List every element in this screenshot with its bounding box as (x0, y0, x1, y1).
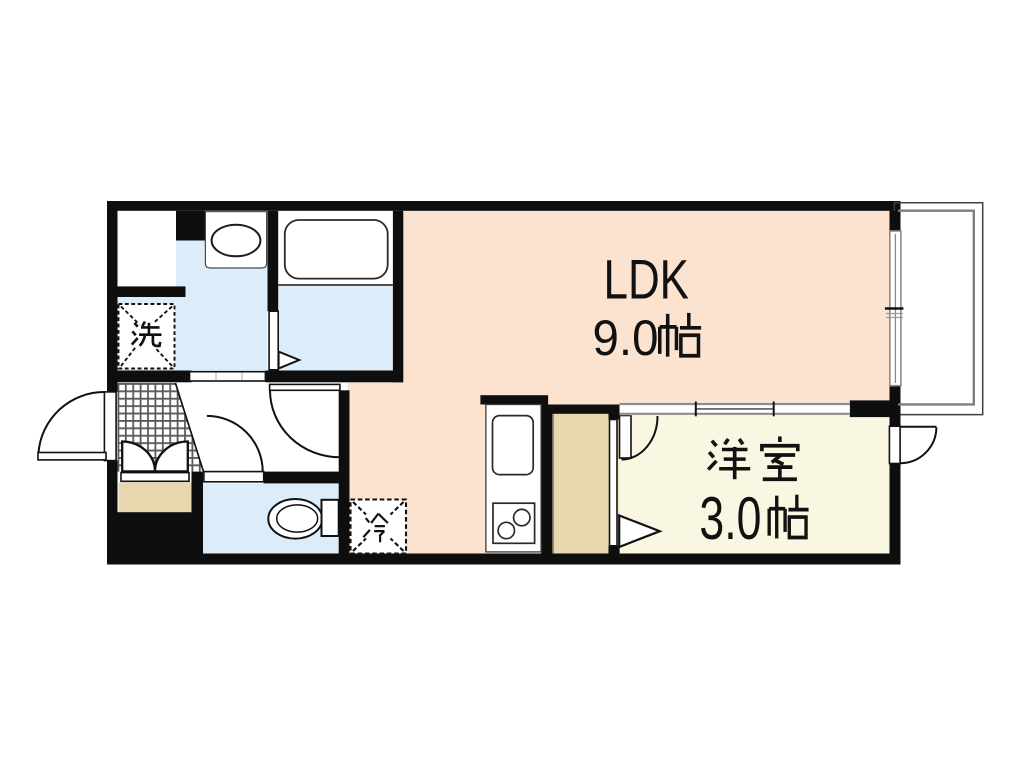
svg-text:9.0: 9.0 (593, 310, 659, 366)
svg-text:3.0: 3.0 (699, 485, 761, 552)
svg-text:LDK: LDK (604, 248, 690, 311)
